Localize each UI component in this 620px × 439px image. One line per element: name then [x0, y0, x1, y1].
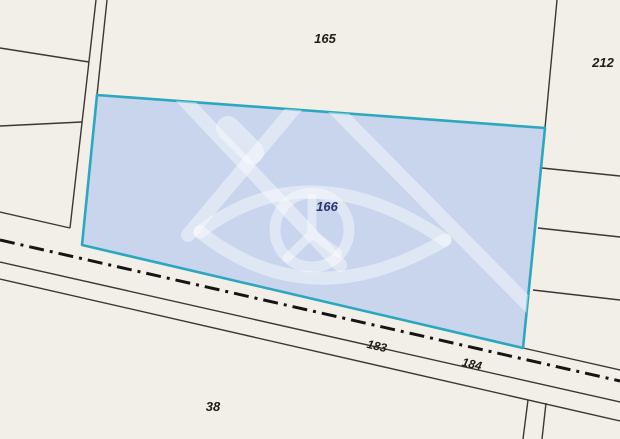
- parcel-label-212: 212: [591, 55, 614, 70]
- parcel-label-166: 166: [316, 199, 338, 214]
- parcel-label-38: 38: [206, 399, 221, 414]
- parcel-label-165: 165: [314, 31, 336, 46]
- map-viewport: 165 212 166 183 184 38: [0, 0, 620, 439]
